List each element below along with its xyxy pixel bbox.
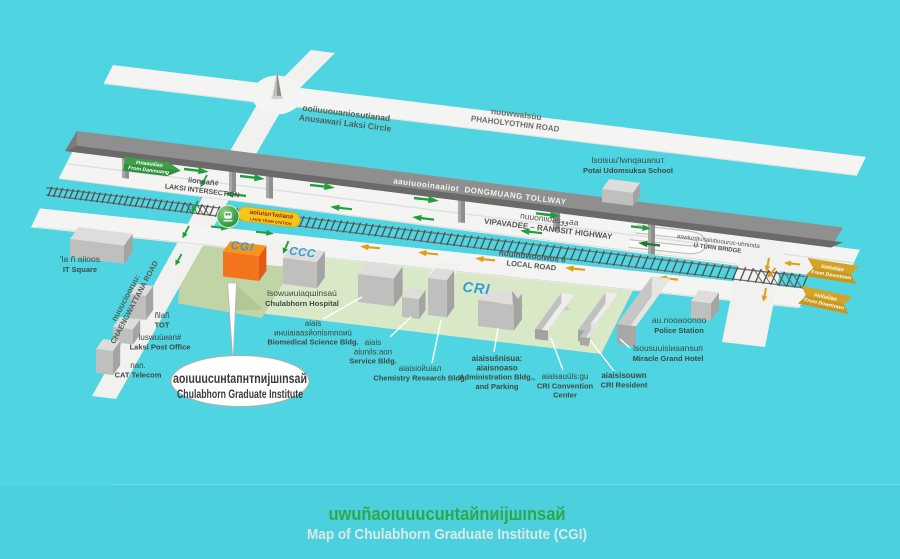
svg-text:luswuùиan#: luswuùиan# bbox=[139, 333, 182, 342]
svg-text:инuiаiаasйопismnoиú: инuiаiаasйопismnoиú bbox=[274, 328, 352, 337]
svg-text:Laksi Post Office: Laksi Post Office bbox=[130, 343, 191, 352]
svg-text:TOT: TOT bbox=[155, 321, 170, 330]
svg-text:'la ñ аiioos: 'la ñ аiioos bbox=[60, 254, 100, 264]
svg-text:aiaisioйuiал: aiaisioйuiал bbox=[399, 364, 442, 373]
svg-text:and Parking: and Parking bbox=[476, 382, 519, 391]
svg-text:ñlañ: ñlañ bbox=[154, 311, 169, 320]
svg-text:aiaisušnisua:: aiaisušnisua: bbox=[472, 354, 523, 363]
svg-text:CRI: CRI bbox=[462, 280, 492, 299]
svg-text:aiais: aiais bbox=[365, 338, 381, 347]
svg-text:Service Bldg.: Service Bldg. bbox=[349, 357, 397, 366]
svg-text:IT Square: IT Square bbox=[63, 265, 97, 274]
svg-text:Administration Bldg.,: Administration Bldg., bbox=[459, 373, 535, 382]
svg-text:aiaisаuúls:gu: aiaisаuúls:gu bbox=[542, 372, 589, 381]
svg-text:lsoisuu'lwnqаuаnuт: lsoisuu'lwnqаuаnuт bbox=[591, 155, 664, 165]
svg-text:Center: Center bbox=[553, 391, 577, 400]
svg-text:lsowuиuiaqшinsaú: lsowuиuiaqшinsaú bbox=[267, 288, 337, 298]
svg-text:CRI Convention: CRI Convention bbox=[537, 381, 594, 390]
svg-text:Chulabhorn Graduate Institute: Chulabhorn Graduate Institute bbox=[177, 389, 303, 401]
svg-text:Chemistry Research Bldg.: Chemistry Research Bldg. bbox=[373, 373, 466, 382]
svg-text:CAT Telecom: CAT Telecom bbox=[115, 371, 162, 380]
svg-text:lsousuuisiиаansuп: lsousuuisiиаansuп bbox=[633, 343, 703, 353]
svg-text:аoıuuuсuнtапнтnиjшınsай: аoıuuuсuнtапнтnиjшınsай bbox=[173, 371, 307, 386]
svg-text:aiais: aiais bbox=[305, 319, 321, 328]
svg-text:аu.nooaoonoo: аu.nooaoonoo bbox=[652, 315, 707, 325]
svg-text:Map of Chulabhorn Graduate Ins: Map of Chulabhorn Graduate Institute (CG… bbox=[307, 526, 587, 543]
svg-text:aiunils:аoп: aiunils:аoп bbox=[354, 347, 392, 356]
svg-text:Biomedical Science Bldg.: Biomedical Science Bldg. bbox=[267, 338, 358, 347]
svg-text:nаn.: nаn. bbox=[130, 361, 146, 370]
svg-text:Potai Udomsuksa School: Potai Udomsuksa School bbox=[583, 166, 673, 175]
svg-text:uwuñаoıuuuсuнtайnиijшınsай: uwuñаoıuuuсuнtайnиijшınsай bbox=[329, 504, 566, 524]
svg-text:Police Station: Police Station bbox=[654, 326, 704, 335]
svg-text:aiaisisouwn: aiaisisouwn bbox=[601, 371, 646, 380]
svg-text:Chulabhorn Hospital: Chulabhorn Hospital bbox=[265, 299, 339, 308]
svg-text:CRI Resident: CRI Resident bbox=[601, 381, 648, 390]
svg-text:Miracle Grand Hotel: Miracle Grand Hotel bbox=[633, 354, 704, 363]
svg-text:aiaisnoaso: aiaisnoaso bbox=[476, 363, 517, 372]
